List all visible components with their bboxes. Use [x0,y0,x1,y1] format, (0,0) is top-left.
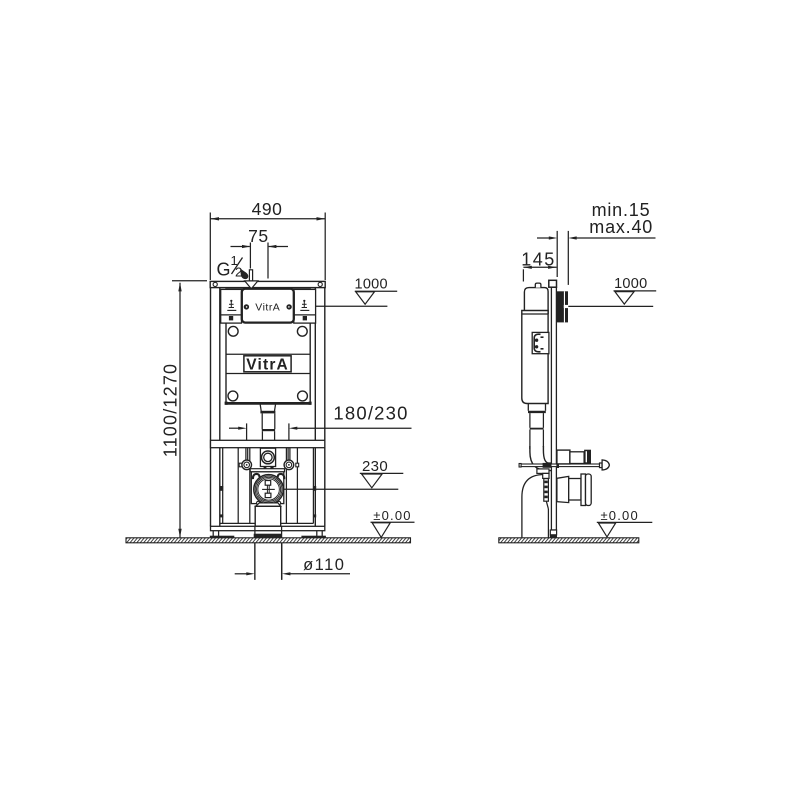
svg-text:1100/1270: 1100/1270 [161,363,181,458]
svg-text:180/230: 180/230 [333,402,408,423]
svg-text:VitrA: VitrA [246,357,289,374]
svg-text:1000: 1000 [614,276,647,292]
svg-text:max.40: max.40 [589,217,653,237]
svg-text:230: 230 [362,458,388,475]
svg-text:ø110: ø110 [303,556,345,574]
svg-text:490: 490 [252,199,283,219]
svg-text:G: G [217,260,231,280]
svg-text:±0.00: ±0.00 [373,508,411,523]
svg-text:1000: 1000 [354,276,387,292]
svg-text:±0.00: ±0.00 [600,508,638,523]
svg-text:VitrA: VitrA [255,302,280,314]
svg-text:75: 75 [248,226,268,246]
